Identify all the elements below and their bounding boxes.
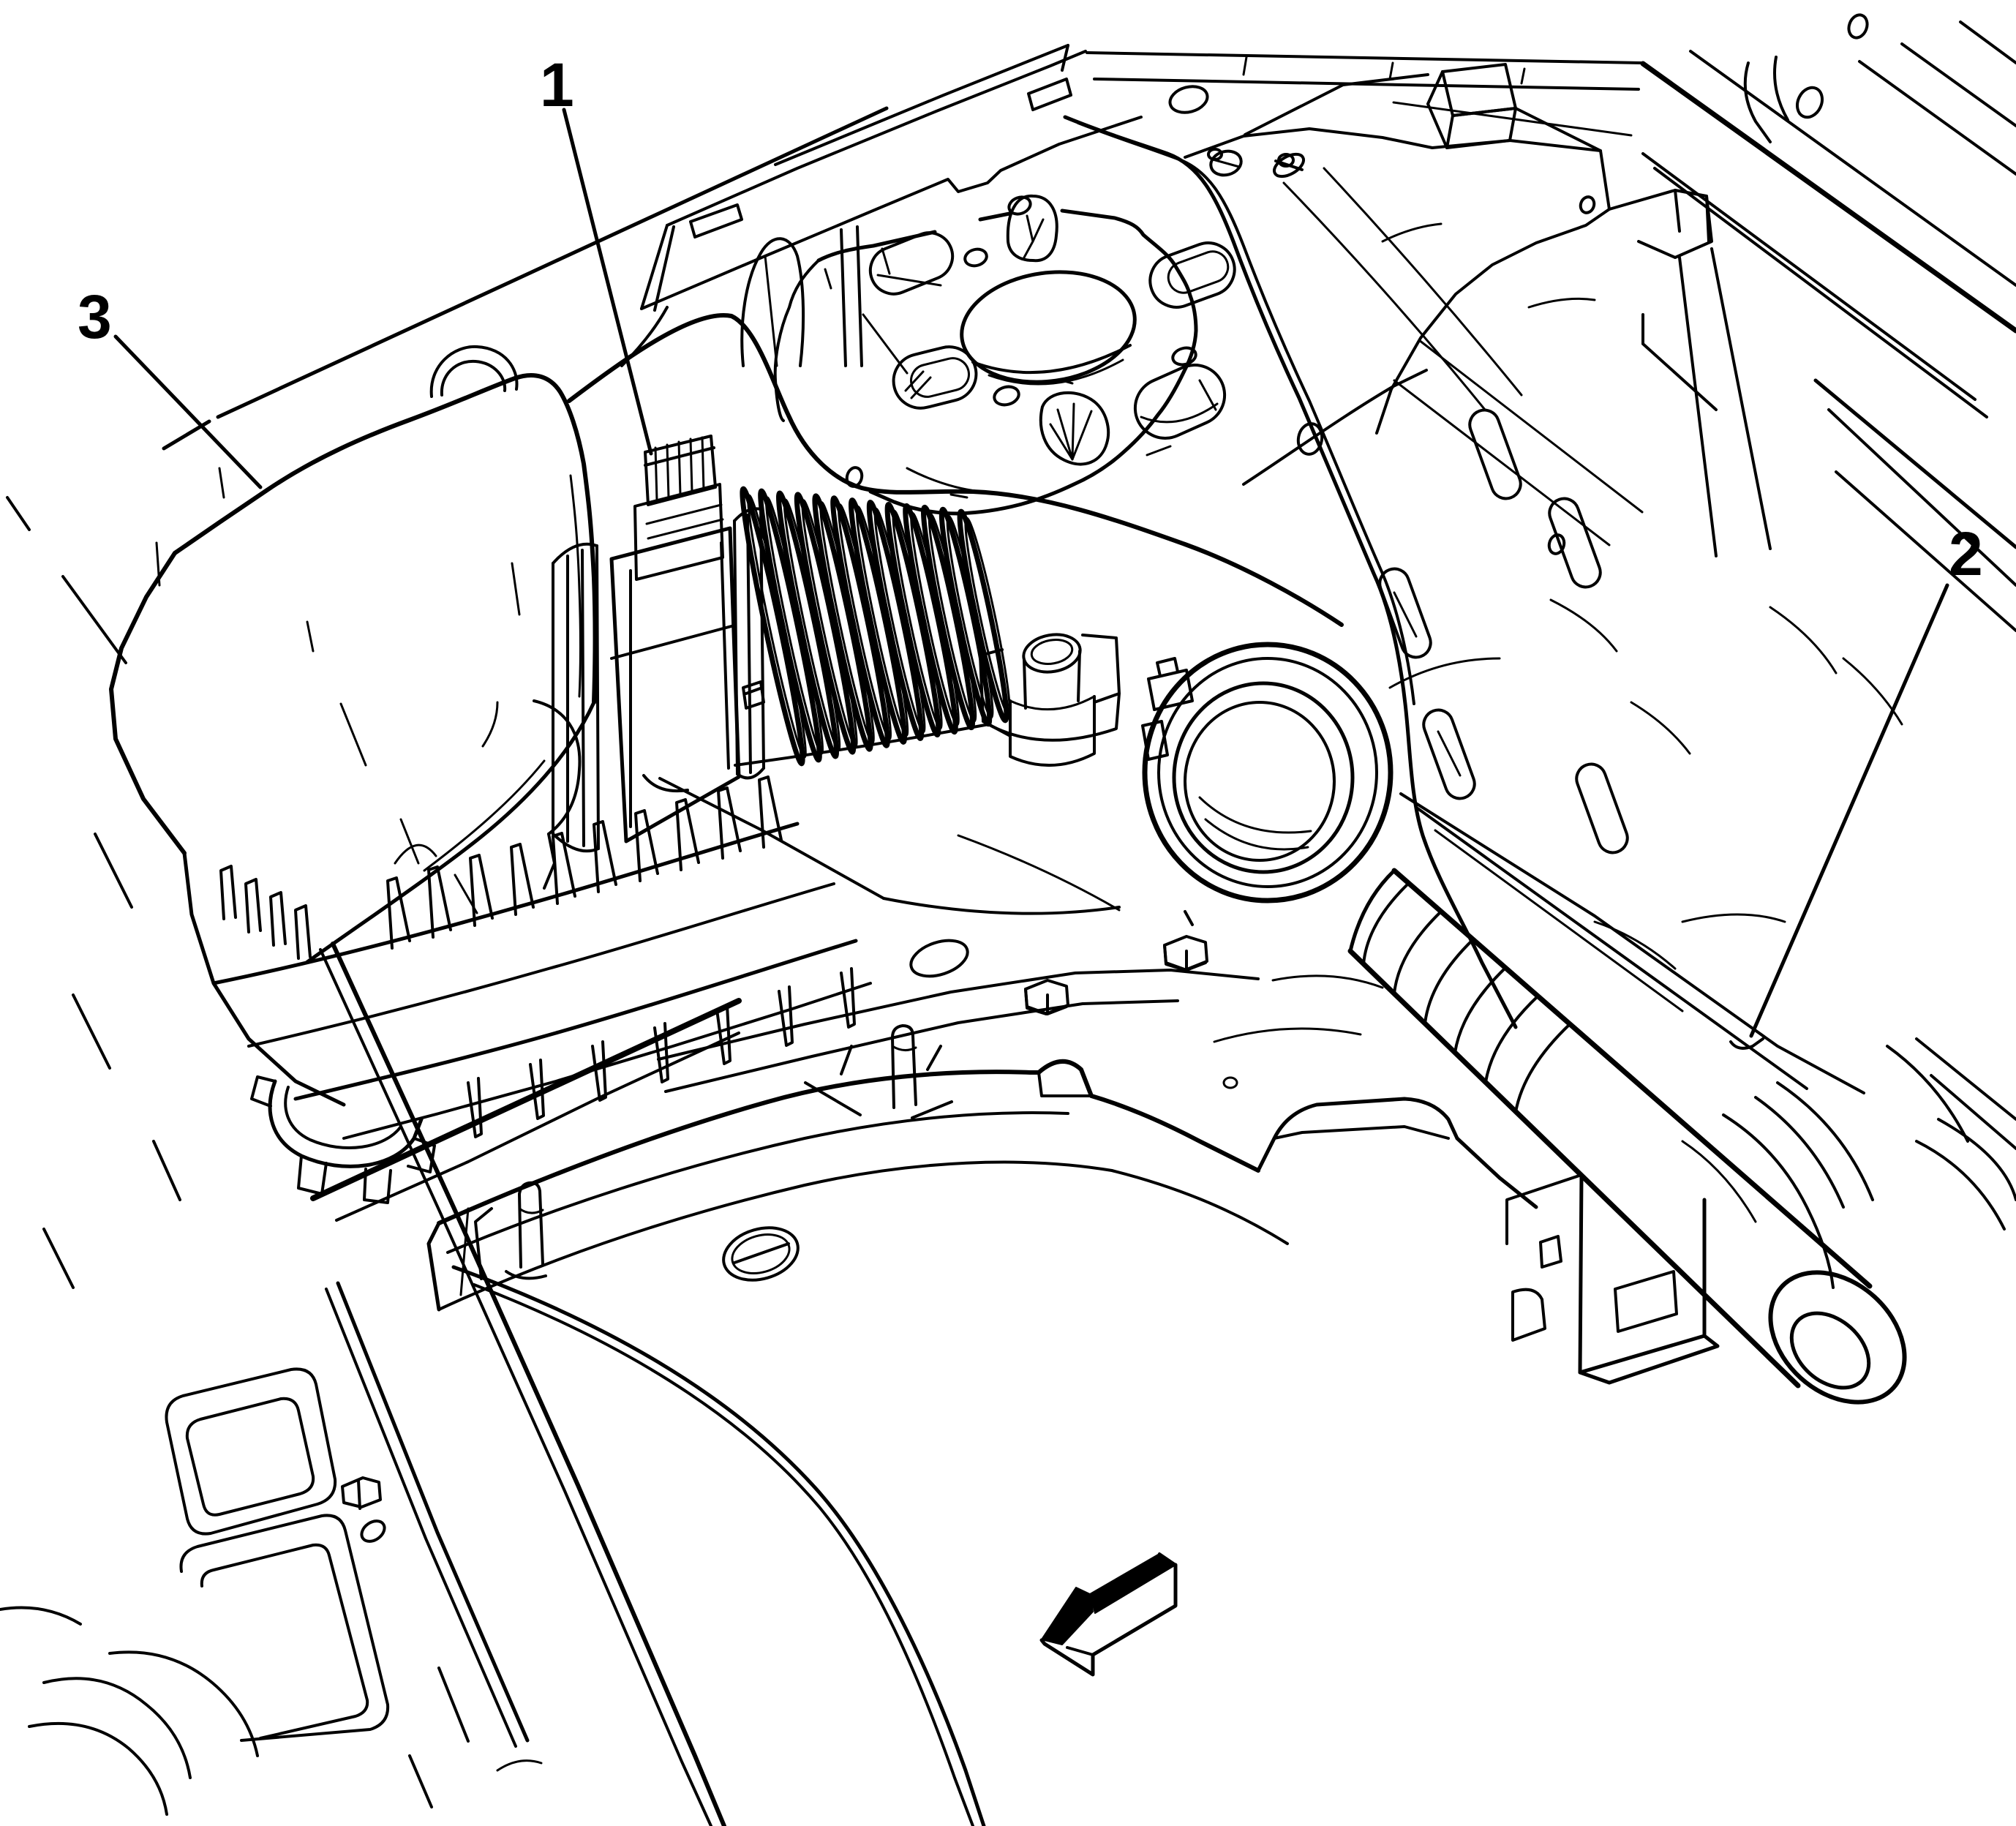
- svg-text:1: 1: [540, 50, 574, 119]
- svg-text:2: 2: [1949, 519, 1983, 588]
- svg-text:3: 3: [78, 282, 112, 351]
